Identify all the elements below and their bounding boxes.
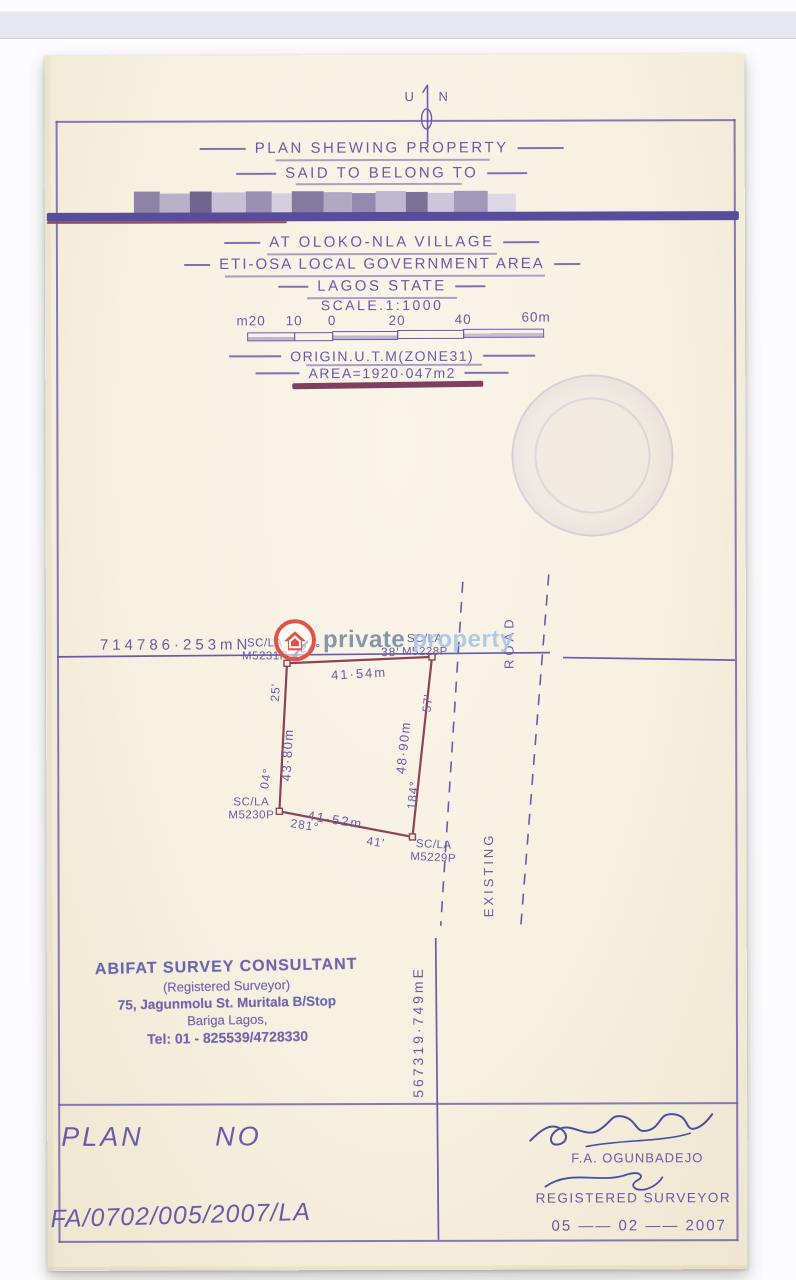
watermark-text: private property [323, 626, 514, 654]
top-bar [0, 11, 796, 39]
page-background: U N PLAN SHEWING PROPERTY SAID TO BELONG… [0, 0, 796, 1280]
corner-label-se: SC/LA M5229P [410, 838, 457, 866]
road-existing-label: EXISTING [481, 835, 496, 917]
survey-date: 05 —— 02 —— 2007 [551, 1217, 721, 1234]
surveyor-title: REGISTERED SURVEYOR [533, 1190, 733, 1206]
northing-line-right [563, 657, 735, 660]
house-icon [283, 629, 307, 651]
surveyor-name: F.A. OGUNBADEJO [547, 1150, 727, 1165]
beacon-sw [276, 808, 282, 814]
easting-line [436, 938, 439, 1240]
edge-length-left: 43·80m [278, 725, 296, 784]
watermark-word-property: property [412, 626, 513, 653]
bearing-right-min: 57' [420, 693, 436, 713]
consultant-stamp: ABIFAT SURVEY CONSULTANT (Registered Sur… [90, 956, 364, 1048]
corner-label-sw: SC/LA M5230P [228, 796, 274, 822]
signature-stroke [526, 1104, 716, 1152]
bearing-left-min: 25' [268, 683, 283, 703]
easting-label: 567319·749mE [410, 957, 426, 1107]
survey-plan-paper: U N PLAN SHEWING PROPERTY SAID TO BELONG… [44, 54, 747, 1271]
northing-label: 714786·253mN [100, 636, 251, 653]
no-label: NO [215, 1121, 262, 1152]
watermark-logo [274, 619, 316, 661]
plan-drawing [44, 54, 747, 1271]
plan-label: PLAN [61, 1122, 144, 1153]
road-dashed-line-right [520, 575, 550, 928]
edge-length-top: 41·54m [331, 665, 388, 683]
bearing-right-deg: 184° [404, 780, 421, 810]
bearing-bottom-min: 41' [366, 834, 387, 851]
watermark-word-private: private [323, 626, 405, 653]
